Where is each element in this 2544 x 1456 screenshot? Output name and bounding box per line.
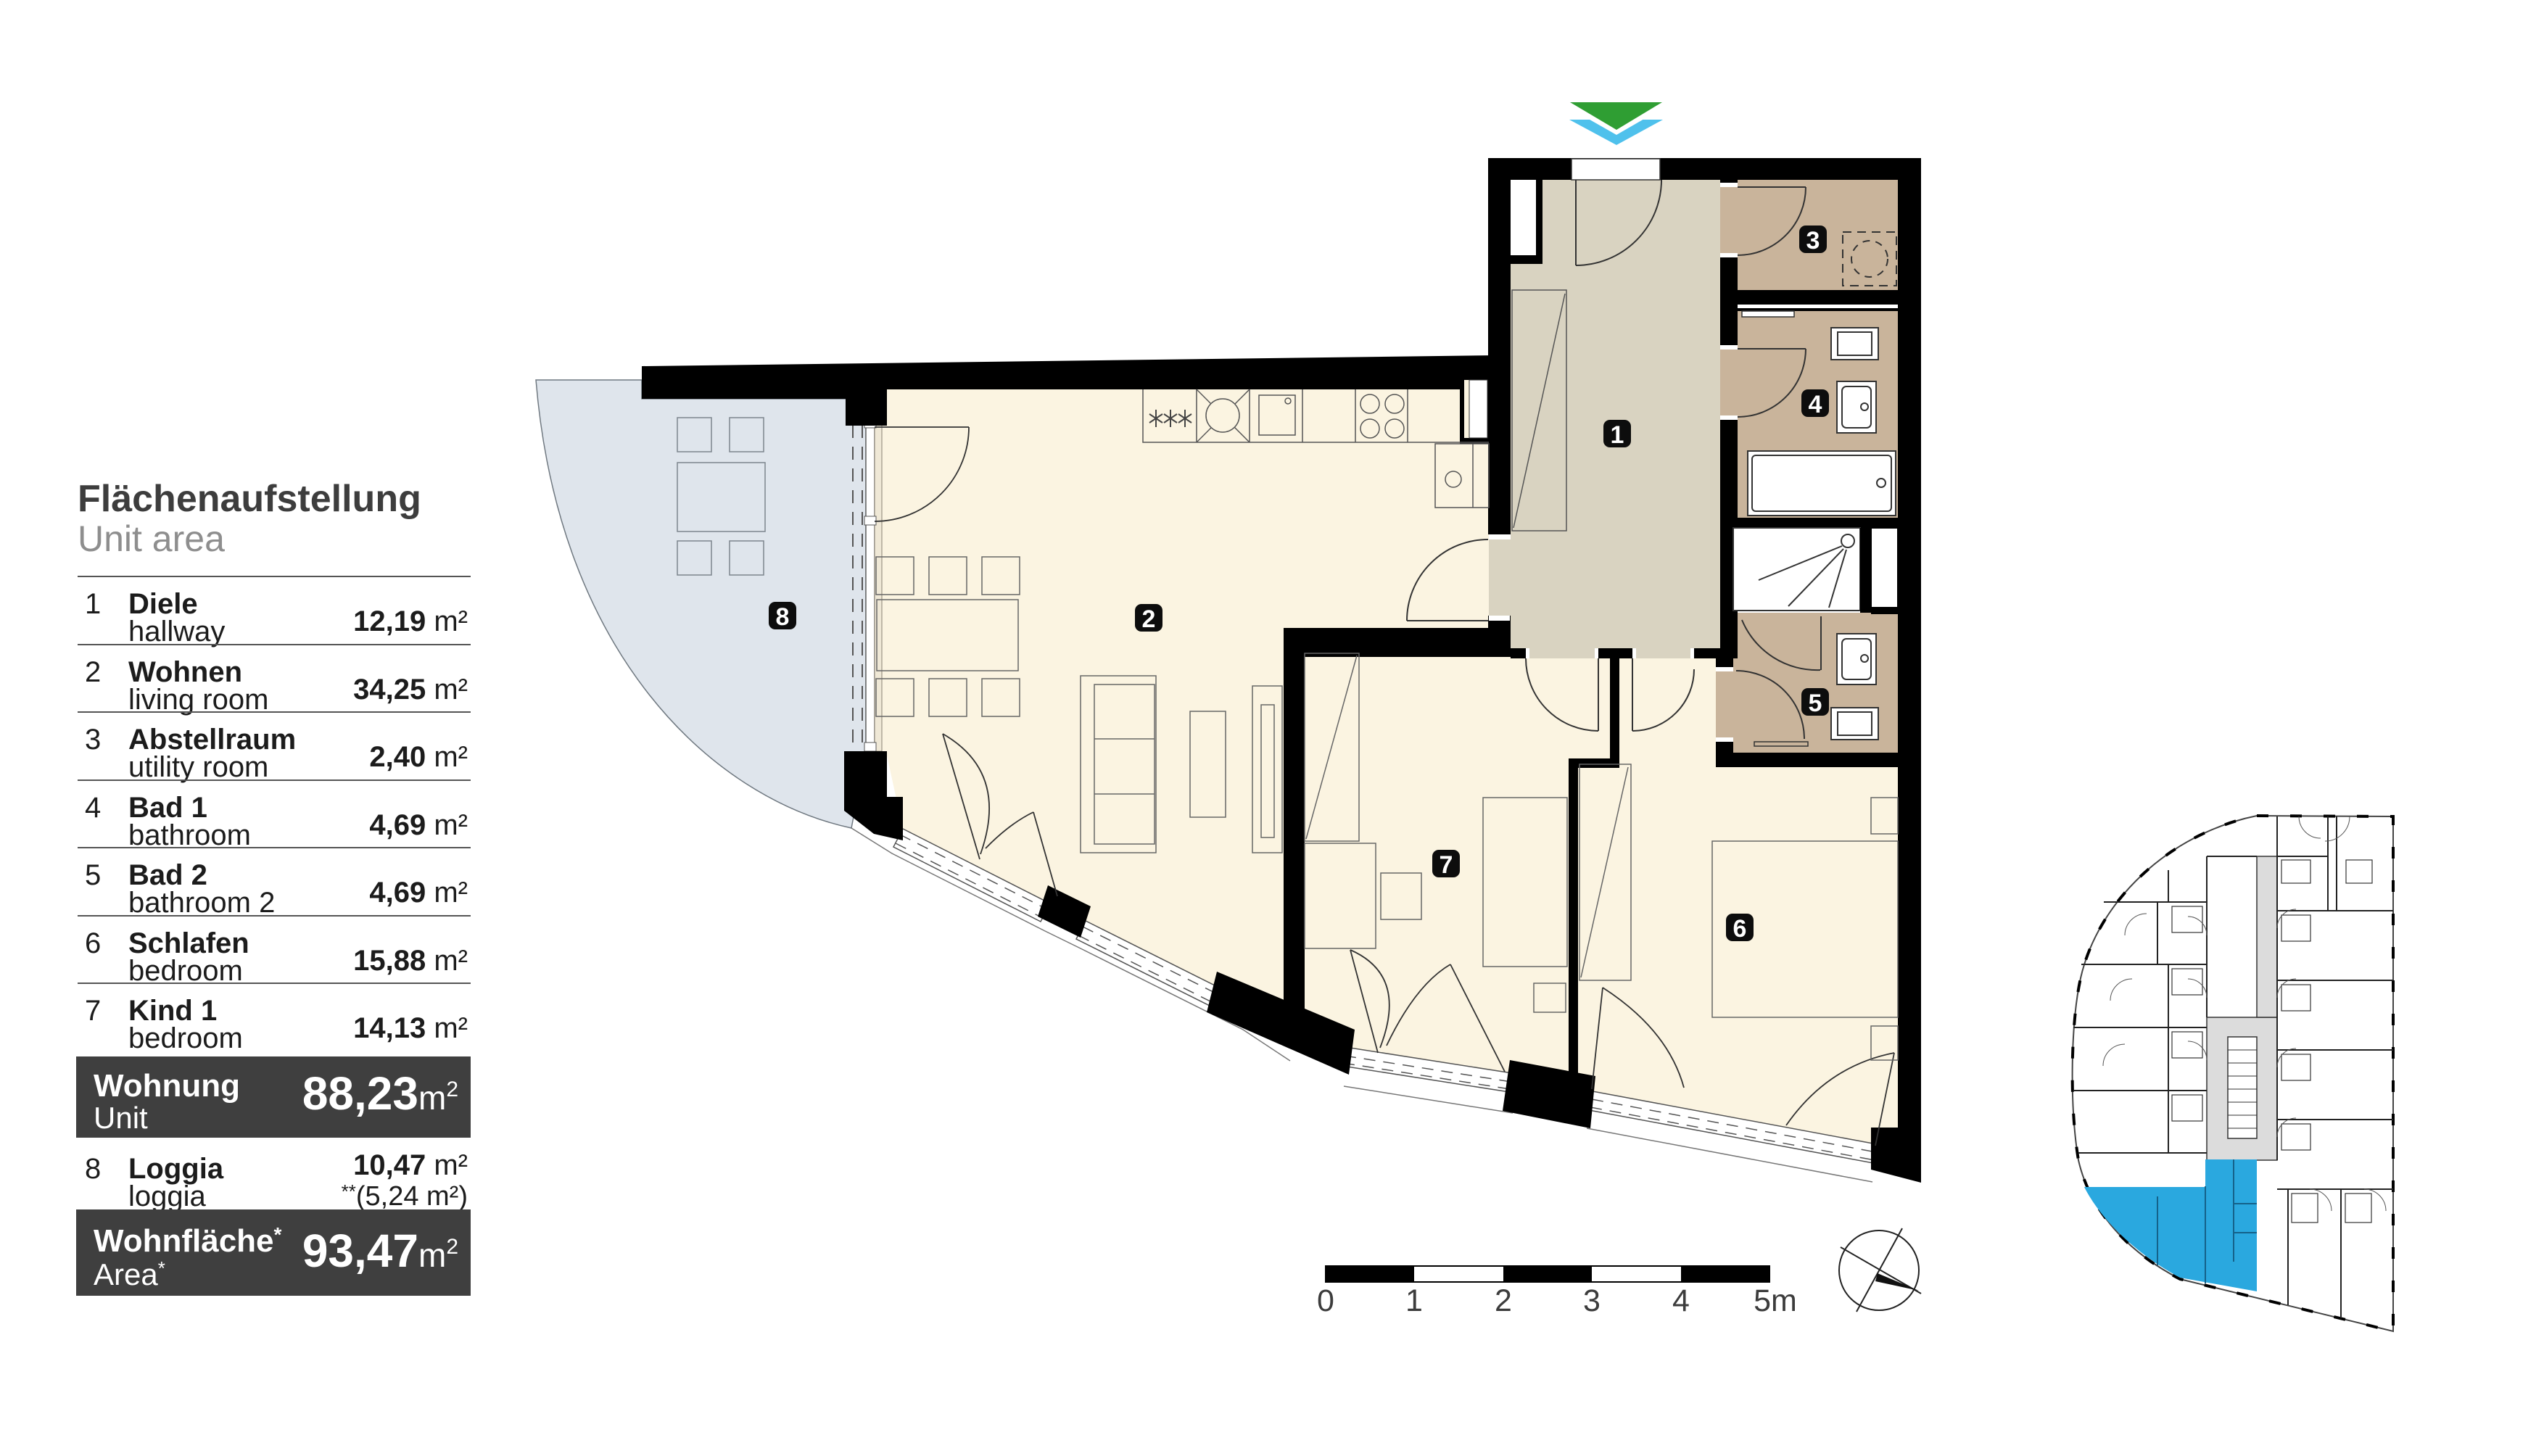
svg-text:1: 1 [1405, 1283, 1423, 1318]
svg-text:loggia: loggia [128, 1180, 207, 1212]
svg-text:bedroom: bedroom [128, 955, 243, 987]
svg-text:Flächenaufstellung: Flächenaufstellung [78, 478, 421, 520]
svg-text:8: 8 [85, 1153, 101, 1185]
svg-text:0: 0 [1317, 1283, 1334, 1318]
svg-text:Wohnfläche*: Wohnfläche* [94, 1223, 282, 1259]
svg-text:2: 2 [1495, 1283, 1512, 1318]
svg-text:4: 4 [1809, 391, 1822, 418]
svg-text:hallway: hallway [128, 616, 225, 648]
svg-text:Wohnung: Wohnung [94, 1068, 240, 1104]
svg-text:10,47 m²: 10,47 m² [353, 1149, 468, 1181]
svg-text:4: 4 [85, 792, 101, 824]
svg-text:14,13 m²: 14,13 m² [353, 1012, 468, 1044]
svg-text:1: 1 [85, 588, 101, 620]
svg-text:utility room: utility room [128, 751, 268, 783]
svg-text:34,25 m²: 34,25 m² [353, 674, 468, 706]
svg-text:bedroom: bedroom [128, 1022, 243, 1054]
svg-text:7: 7 [85, 995, 101, 1027]
svg-text:bathroom: bathroom [128, 819, 251, 851]
svg-text:4: 4 [1672, 1283, 1690, 1318]
svg-text:7: 7 [1440, 851, 1453, 879]
svg-text:2: 2 [1142, 605, 1156, 633]
svg-text:5: 5 [85, 859, 101, 891]
svg-text:Area*: Area* [94, 1257, 165, 1291]
svg-text:5: 5 [1809, 690, 1822, 717]
svg-text:15,88 m²: 15,88 m² [353, 945, 468, 977]
svg-text:2: 2 [85, 656, 101, 688]
svg-text:8: 8 [776, 603, 790, 631]
svg-text:5m: 5m [1754, 1283, 1797, 1318]
svg-text:3: 3 [85, 724, 101, 756]
svg-text:12,19 m²: 12,19 m² [353, 605, 468, 637]
svg-text:living room: living room [128, 684, 268, 716]
svg-text:3: 3 [1583, 1283, 1601, 1318]
svg-text:1: 1 [1611, 421, 1624, 449]
svg-text:4,69 m²: 4,69 m² [369, 877, 468, 909]
svg-text:6: 6 [1733, 915, 1747, 943]
svg-text:6: 6 [85, 927, 101, 959]
svg-text:Unit: Unit [94, 1101, 148, 1135]
svg-text:bathroom 2: bathroom 2 [128, 887, 275, 919]
svg-text:Unit area: Unit area [78, 518, 225, 559]
svg-text:**(5,24 m²): **(5,24 m²) [342, 1180, 468, 1212]
svg-text:4,69 m²: 4,69 m² [369, 809, 468, 841]
svg-text:2,40 m²: 2,40 m² [369, 741, 468, 773]
svg-text:3: 3 [1806, 227, 1820, 255]
